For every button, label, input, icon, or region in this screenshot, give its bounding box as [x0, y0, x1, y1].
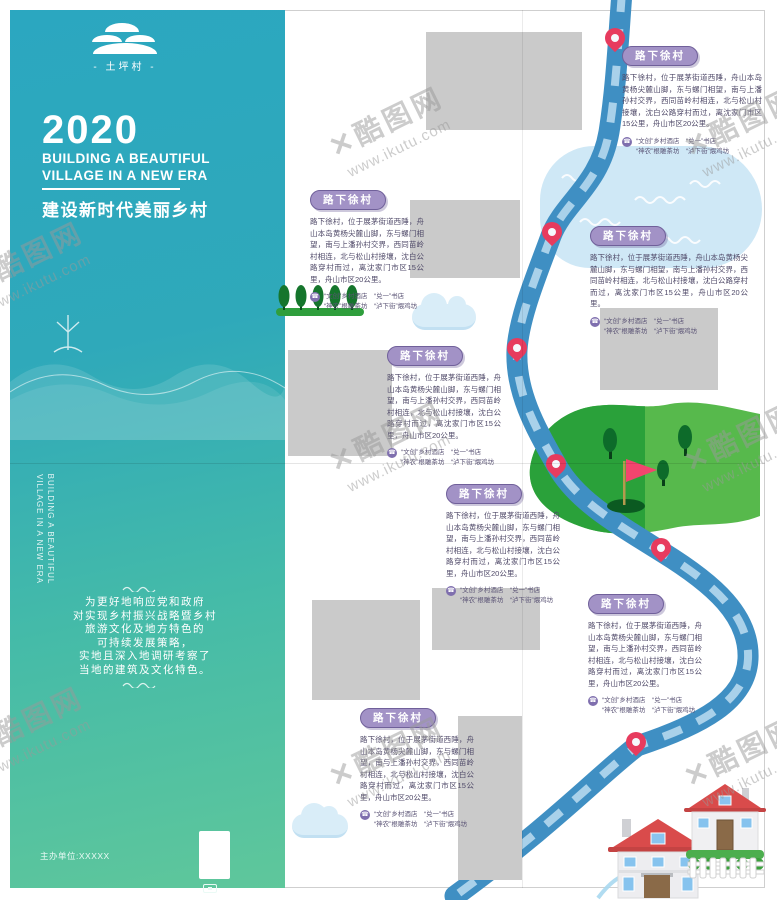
village-amenities: ☎ “文创”乡村酒店 “兑一”书店 “神农”根雕茶坊 “泸下街”煨鸡坊: [446, 586, 560, 606]
village-block: 路下徐村 路下徐村，位于展茅街道西陲，舟山本岛黄杨尖麓山脚，东与螺门相望，南与上…: [360, 708, 474, 830]
village-label: 路下徐村: [310, 190, 386, 210]
amenity-line: “文创”乡村酒店 “兑一”书店: [604, 318, 684, 325]
phone-icon: ☎: [360, 810, 370, 820]
amenity-line: “神农”根雕茶坊 “泸下街”煨鸡坊: [324, 303, 417, 310]
village-label: 路下徐村: [387, 346, 463, 366]
village-amenities: ☎ “文创”乡村酒店 “兑一”书店 “神农”根雕茶坊 “泸下街”煨鸡坊: [622, 137, 762, 157]
photo-placeholder: [426, 32, 582, 130]
village-amenities: ☎ “文创”乡村酒店 “兑一”书店 “神农”根雕茶坊 “泸下街”煨鸡坊: [360, 810, 474, 830]
village-amenities: ☎ “文创”乡村酒店 “兑一”书店 “神农”根雕茶坊 “泸下街”煨鸡坊: [588, 696, 702, 716]
house-icon: [684, 782, 766, 882]
flag-icon: [604, 455, 666, 515]
amenity-line: “神农”根雕茶坊 “泸下街”煨鸡坊: [460, 597, 553, 604]
cloud-icon: [292, 814, 348, 838]
village-label: 路下徐村: [622, 46, 698, 66]
amenity-line: “神农”根雕茶坊 “泸下街”煨鸡坊: [374, 821, 467, 828]
phone-icon: ☎: [588, 696, 598, 706]
phone-icon: ☎: [387, 448, 397, 458]
fold-line-vertical: [522, 10, 523, 888]
village-description: 路下徐村，位于展茅街道西陲，舟山本岛黄杨尖麓山脚，东与螺门相望，南与上潘孙村交界…: [310, 216, 424, 285]
amenity-line: “文创”乡村酒店 “兑一”书店: [324, 293, 404, 300]
photo-placeholder: [410, 200, 520, 278]
brochure-page: - 土坪村 - 2020 BUILDING A BEAUTIFUL VILLAG…: [0, 0, 777, 900]
village-description: 路下徐村，位于展茅街道西陲，舟山本岛黄杨尖麓山脚，东与螺门相望，南与上潘孙村交界…: [446, 510, 560, 579]
village-block: 路下徐村 路下徐村，位于展茅街道西陲，舟山本岛黄杨尖麓山脚，东与螺门相望，南与上…: [387, 346, 501, 468]
photo-placeholder: [312, 600, 420, 700]
village-description: 路下徐村，位于展茅街道西陲，舟山本岛黄杨尖麓山脚，东与螺门相望，南与上潘孙村交界…: [360, 734, 474, 803]
village-label: 路下徐村: [446, 484, 522, 504]
amenity-line: “文创”乡村酒店 “兑一”书店: [602, 697, 682, 704]
phone-icon: ☎: [622, 137, 632, 147]
village-amenities: ☎ “文创”乡村酒店 “兑一”书店 “神农”根雕茶坊 “泸下街”煨鸡坊: [590, 317, 748, 337]
amenity-line: “神农”根雕茶坊 “泸下街”煨鸡坊: [604, 328, 697, 335]
fold-line-horizontal: [10, 463, 765, 464]
amenity-line: “神农”根雕茶坊 “泸下街”煨鸡坊: [602, 707, 695, 714]
phone-icon: ☎: [590, 317, 600, 327]
village-description: 路下徐村，位于展茅街道西陲，舟山本岛黄杨尖麓山脚，东与螺门相望，南与上潘孙村交界…: [588, 620, 702, 689]
village-label: 路下徐村: [360, 708, 436, 728]
amenity-line: “文创”乡村酒店 “兑一”书店: [374, 811, 454, 818]
village-block: 路下徐村 路下徐村，位于展茅街道西陲，舟山本岛黄杨尖麓山脚，东与螺门相望，南与上…: [446, 484, 560, 606]
village-description: 路下徐村，位于展茅街道西陲，舟山本岛黄杨尖麓山脚，东与螺门相望，南与上潘孙村交界…: [622, 72, 762, 130]
phone-icon: ☎: [446, 586, 456, 596]
amenity-line: “神农”根雕茶坊 “泸下街”煨鸡坊: [636, 148, 729, 155]
village-description: 路下徐村，位于展茅街道西陲，舟山本岛黄杨尖麓山脚，东与螺门相望，南与上潘孙村交界…: [590, 252, 748, 310]
village-block: 路下徐村 路下徐村，位于展茅街道西陲，舟山本岛黄杨尖麓山脚，东与螺门相望，南与上…: [310, 190, 424, 312]
village-amenities: ☎ “文创”乡村酒店 “兑一”书店 “神农”根雕茶坊 “泸下街”煨鸡坊: [387, 448, 501, 468]
village-description: 路下徐村，位于展茅街道西陲，舟山本岛黄杨尖麓山脚，东与螺门相望，南与上潘孙村交界…: [387, 372, 501, 441]
amenity-line: “文创”乡村酒店 “兑一”书店: [460, 587, 540, 594]
amenity-line: “文创”乡村酒店 “兑一”书店: [636, 138, 716, 145]
village-label: 路下徐村: [590, 226, 666, 246]
amenity-line: “文创”乡村酒店 “兑一”书店: [401, 449, 481, 456]
village-block: 路下徐村 路下徐村，位于展茅街道西陲，舟山本岛黄杨尖麓山脚，东与螺门相望，南与上…: [590, 226, 748, 337]
village-label: 路下徐村: [588, 594, 664, 614]
village-block: 路下徐村 路下徐村，位于展茅街道西陲，舟山本岛黄杨尖麓山脚，东与螺门相望，南与上…: [588, 594, 702, 716]
village-amenities: ☎ “文创”乡村酒店 “兑一”书店 “神农”根雕茶坊 “泸下街”煨鸡坊: [310, 292, 424, 312]
photo-placeholder: [288, 350, 392, 456]
village-block: 路下徐村 路下徐村，位于展茅街道西陲，舟山本岛黄杨尖麓山脚，东与螺门相望，南与上…: [622, 46, 762, 157]
phone-icon: ☎: [310, 292, 320, 302]
